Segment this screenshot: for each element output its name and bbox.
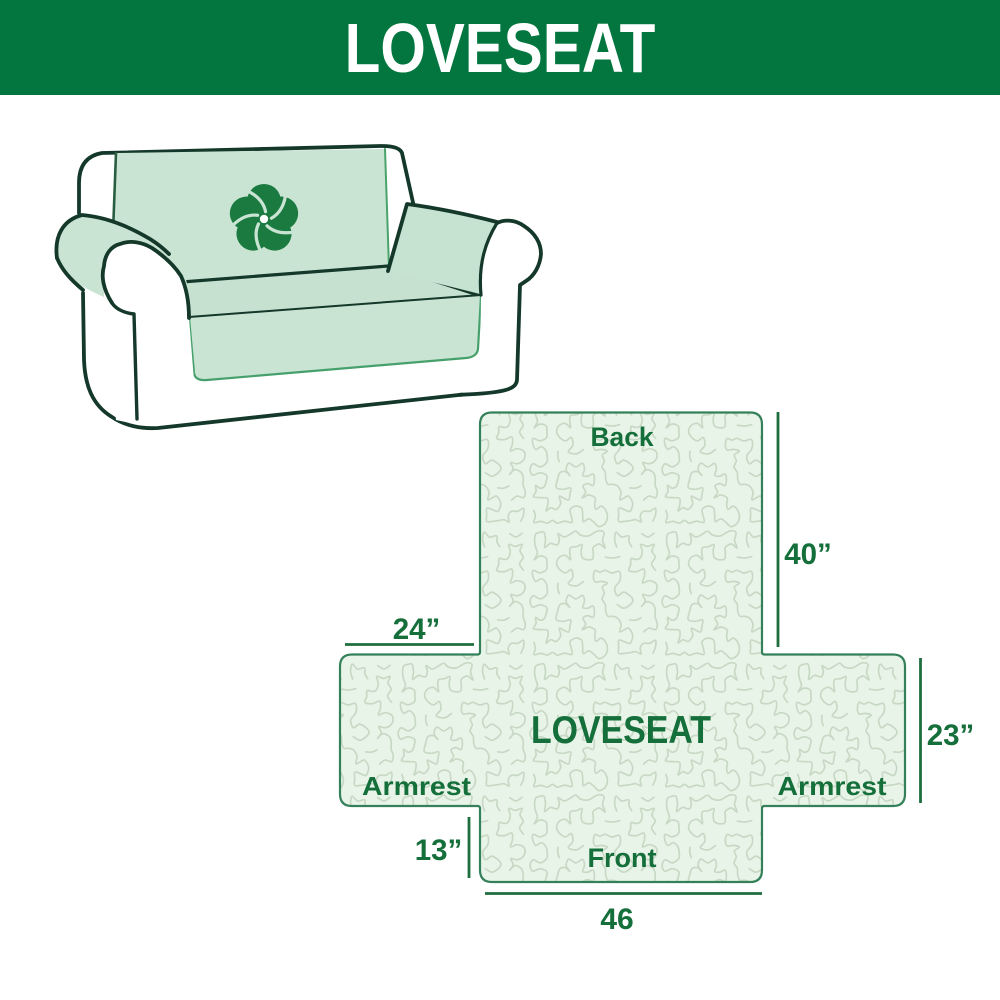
svg-text:LOVESEAT: LOVESEAT <box>531 709 711 752</box>
svg-text:40”: 40” <box>784 538 832 571</box>
svg-text:24”: 24” <box>393 613 441 646</box>
svg-text:Front: Front <box>588 843 657 873</box>
svg-text:Back: Back <box>591 422 655 452</box>
svg-text:Armrest: Armrest <box>362 771 471 801</box>
svg-text:23”: 23” <box>927 719 975 752</box>
svg-text:Armrest: Armrest <box>778 771 887 801</box>
svg-text:13”: 13” <box>415 834 463 867</box>
svg-text:46: 46 <box>600 903 633 936</box>
